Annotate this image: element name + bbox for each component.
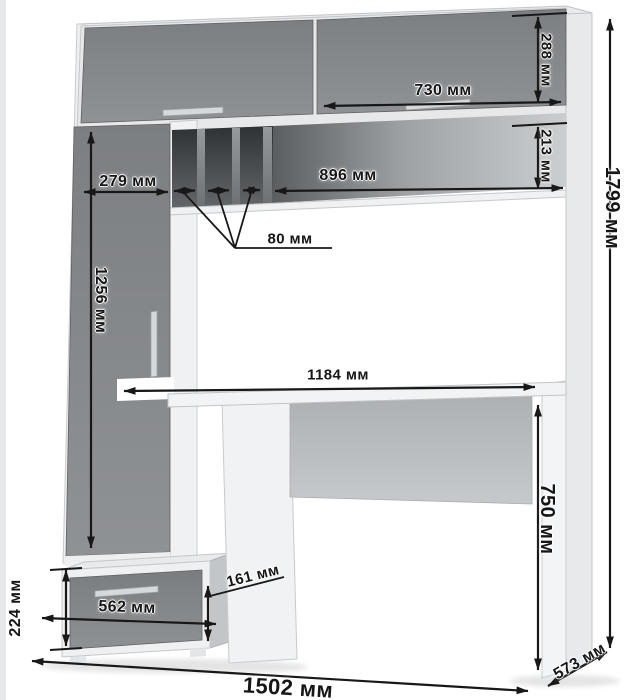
- dimension-halo: [117, 377, 174, 401]
- dim-label-desktop-height: 750 мм: [537, 484, 557, 555]
- dim-label-left-section-width: 279 мм: [99, 174, 156, 190]
- dim-label-total-width: 1502 мм: [242, 674, 334, 700]
- right-side-panel: [566, 6, 592, 672]
- pedestal-foot: [190, 648, 206, 657]
- dim-label-hutch-door-width: 730 мм: [414, 83, 471, 99]
- pigeonhole-divider: [263, 127, 272, 204]
- photo-left-edge: [0, 0, 6, 700]
- pigeonhole-divider: [232, 128, 240, 205]
- dim-label-hutch-door-height: 288 мм: [539, 33, 554, 87]
- dim-label-tall-door-height: 1256 мм: [92, 267, 108, 334]
- dim-label-pedestal-height: 224 мм: [8, 579, 24, 636]
- tall-door-handle: [151, 311, 157, 377]
- dimension-diagram: 288 мм 730 мм 213 мм 896 мм 279 мм 80 мм…: [0, 0, 627, 700]
- hutch-left-door: [81, 20, 313, 123]
- dim-line-80-slot2: [208, 190, 229, 191]
- pigeonhole-divider: [197, 129, 205, 206]
- desk-left-leg: [222, 397, 297, 663]
- dim-label-niche-height: 213 мм: [539, 129, 554, 183]
- dim-label-total-height: 1799 мм: [602, 167, 622, 249]
- dim-label-desktop-width: 1184 мм: [307, 368, 369, 383]
- desk-modesty-panel: [290, 394, 532, 504]
- furniture-drawing: [0, 0, 627, 700]
- dim-label-drawer-width: 562 мм: [98, 599, 156, 617]
- dim-label-niche-width: 896 мм: [319, 168, 376, 184]
- dim-label-slot-width: 80 мм: [267, 232, 312, 247]
- dim-line-80-slot1: [174, 191, 195, 192]
